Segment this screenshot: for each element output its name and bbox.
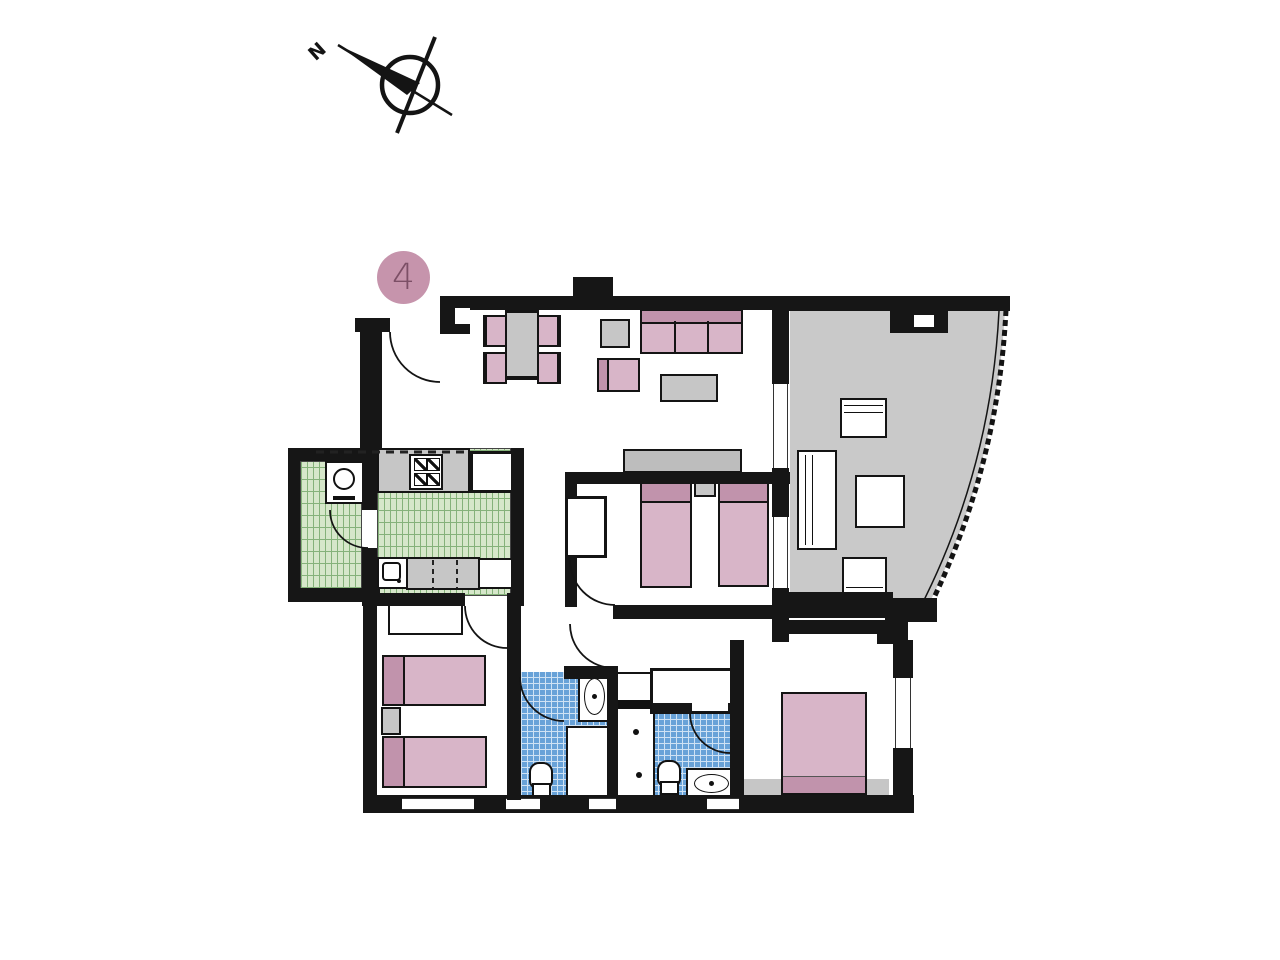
entrance-door-arc xyxy=(390,332,440,382)
bedroom2-door-arc xyxy=(465,606,507,648)
hall-door-arc xyxy=(570,560,615,605)
compass-rose: N xyxy=(290,15,480,145)
door-swing-arcs xyxy=(0,0,1280,960)
utility-door-arc xyxy=(330,510,368,548)
compass-needle xyxy=(338,45,420,95)
unit-number: 4 xyxy=(392,257,415,298)
unit-number-badge: 4 xyxy=(377,251,430,304)
bedroom1-door-arc xyxy=(570,624,614,668)
bathroom2-door-arc xyxy=(690,713,730,753)
bathroom1-door-arc xyxy=(520,677,564,721)
floorplan-canvas: N 4 xyxy=(0,0,1280,960)
compass-north-label: N xyxy=(304,38,331,65)
